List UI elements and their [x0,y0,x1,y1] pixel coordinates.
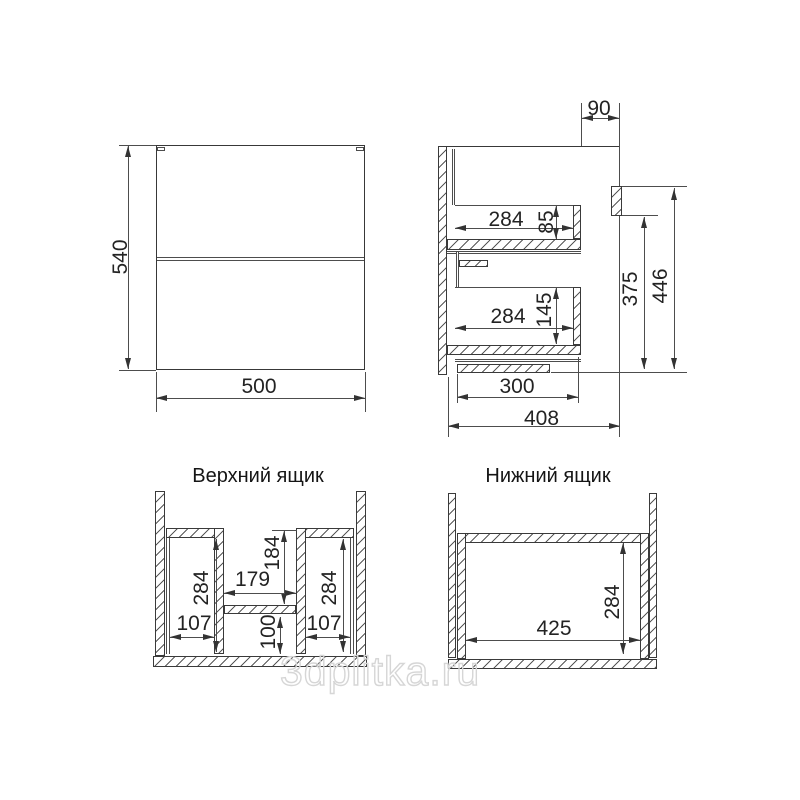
dim-540-arrow-down [125,358,131,369]
dim-500-arrow-right [354,395,365,401]
front-view-corner-tab-right [356,147,364,151]
upper-drawer-back-panel [452,149,455,206]
side-back-panel [438,146,447,375]
dim-284-upper-label: 284 [484,209,528,231]
dim-284-lower-arrow-right [562,325,573,331]
dim-375-label: 375 [620,267,642,311]
dim-540-ext-bottom [119,370,156,371]
dim-284-left-label: 284 [191,566,213,610]
dim-425-arrow-left [466,637,477,643]
dim-375-line [644,217,645,369]
lower-view-side-wall-right [640,533,649,659]
watermark-text: 3dplitka.ru [280,648,480,695]
dim-107-right-label: 107 [302,613,346,635]
middle-rail-vertical [456,252,459,287]
dim-408-arrow-right [609,423,620,429]
dim-284-lowerview-arrow-up [620,543,626,554]
dim-446-arrow-up [671,189,677,200]
dim-408-label: 408 [520,408,564,430]
upper-view-side-wall-right [350,538,354,654]
upper-view-cabinet-side-left [155,491,165,656]
dim-408-arrow-left [448,423,459,429]
dim-284-upper-arrow-left [455,225,466,231]
dim-284-upper-arrow-right [562,225,573,231]
front-view-drawer-gap-line-2 [157,260,364,261]
dim-100-label: 100 [258,610,280,654]
technical-drawing-canvas: 540 500 90 446 375 [0,0,800,800]
hanger-bottom-ext-line [622,215,659,216]
dim-540-arrow-up [125,146,131,157]
front-view-drawer-gap-line-1 [157,257,364,258]
dim-375-arrow-down [641,358,647,369]
dim-540-label: 540 [110,235,132,279]
dim-300-arrow-left [457,394,468,400]
side-top-panel-line [447,146,620,147]
lower-drawer-slide-line [455,359,581,362]
dim-284-lowerview-arrow-down [620,643,626,654]
upper-view-cabinet-side-right [356,491,366,656]
lower-drawer-title: Нижний ящик [448,464,648,488]
dim-145-label: 145 [534,288,556,332]
dim-500-arrow-left [156,395,167,401]
dim-107-left-label: 107 [172,613,216,635]
front-view-corner-tab-left [157,147,165,151]
upper-drawer-bottom-panel [447,239,581,251]
dim-284-lower-arrow-left [455,325,466,331]
dim-300-label: 300 [495,376,539,398]
dim-500-ext-left [156,372,157,412]
upper-drawer-front-wall [573,205,581,239]
upper-drawer-title: Верхний ящик [158,464,358,488]
dim-446-label: 446 [650,264,672,308]
dim-284-left-arrow-down [213,641,219,652]
lower-view-cabinet-side-right [649,493,658,658]
dim-179-arrow-right [285,590,296,596]
lower-view-back-wall [457,533,649,543]
dim-284-right-arrow-up [340,539,346,550]
dim-284-left-arrow-up [213,539,219,550]
dim-145-arrow-down [553,333,559,344]
dim-500-ext-right [365,372,366,412]
side-bottom-ext-line [551,372,687,373]
dim-375-arrow-up [641,217,647,228]
lower-drawer-front-wall [573,287,581,345]
lower-view-side-wall-left [457,533,466,659]
dim-425-arrow-right [629,637,640,643]
dim-85-label: 85 [536,200,558,244]
lower-view-cabinet-side-left [448,493,457,658]
dim-425-label: 425 [532,618,576,640]
dim-284-lower-label: 284 [486,306,530,328]
hanger-top-ext-line [622,186,688,187]
dim-446-line [674,188,675,369]
dim-179-label: 179 [231,569,275,591]
lower-drawer-bottom-panel [447,345,581,355]
dim-446-arrow-down [671,358,677,369]
dim-300-ext-right [578,357,579,403]
dim-500-label: 500 [237,376,281,398]
dim-300-arrow-right [567,394,578,400]
middle-rail-bracket [459,260,488,268]
dim-284-left-line [216,539,217,653]
dim-90-label: 90 [577,98,621,120]
wall-hanger-block [611,186,622,216]
cabinet-bottom-panel [457,364,551,374]
dim-284-right-label: 284 [319,566,341,610]
upper-drawer-slide-line [447,251,581,254]
dim-284-lowerview-label: 284 [602,580,624,624]
